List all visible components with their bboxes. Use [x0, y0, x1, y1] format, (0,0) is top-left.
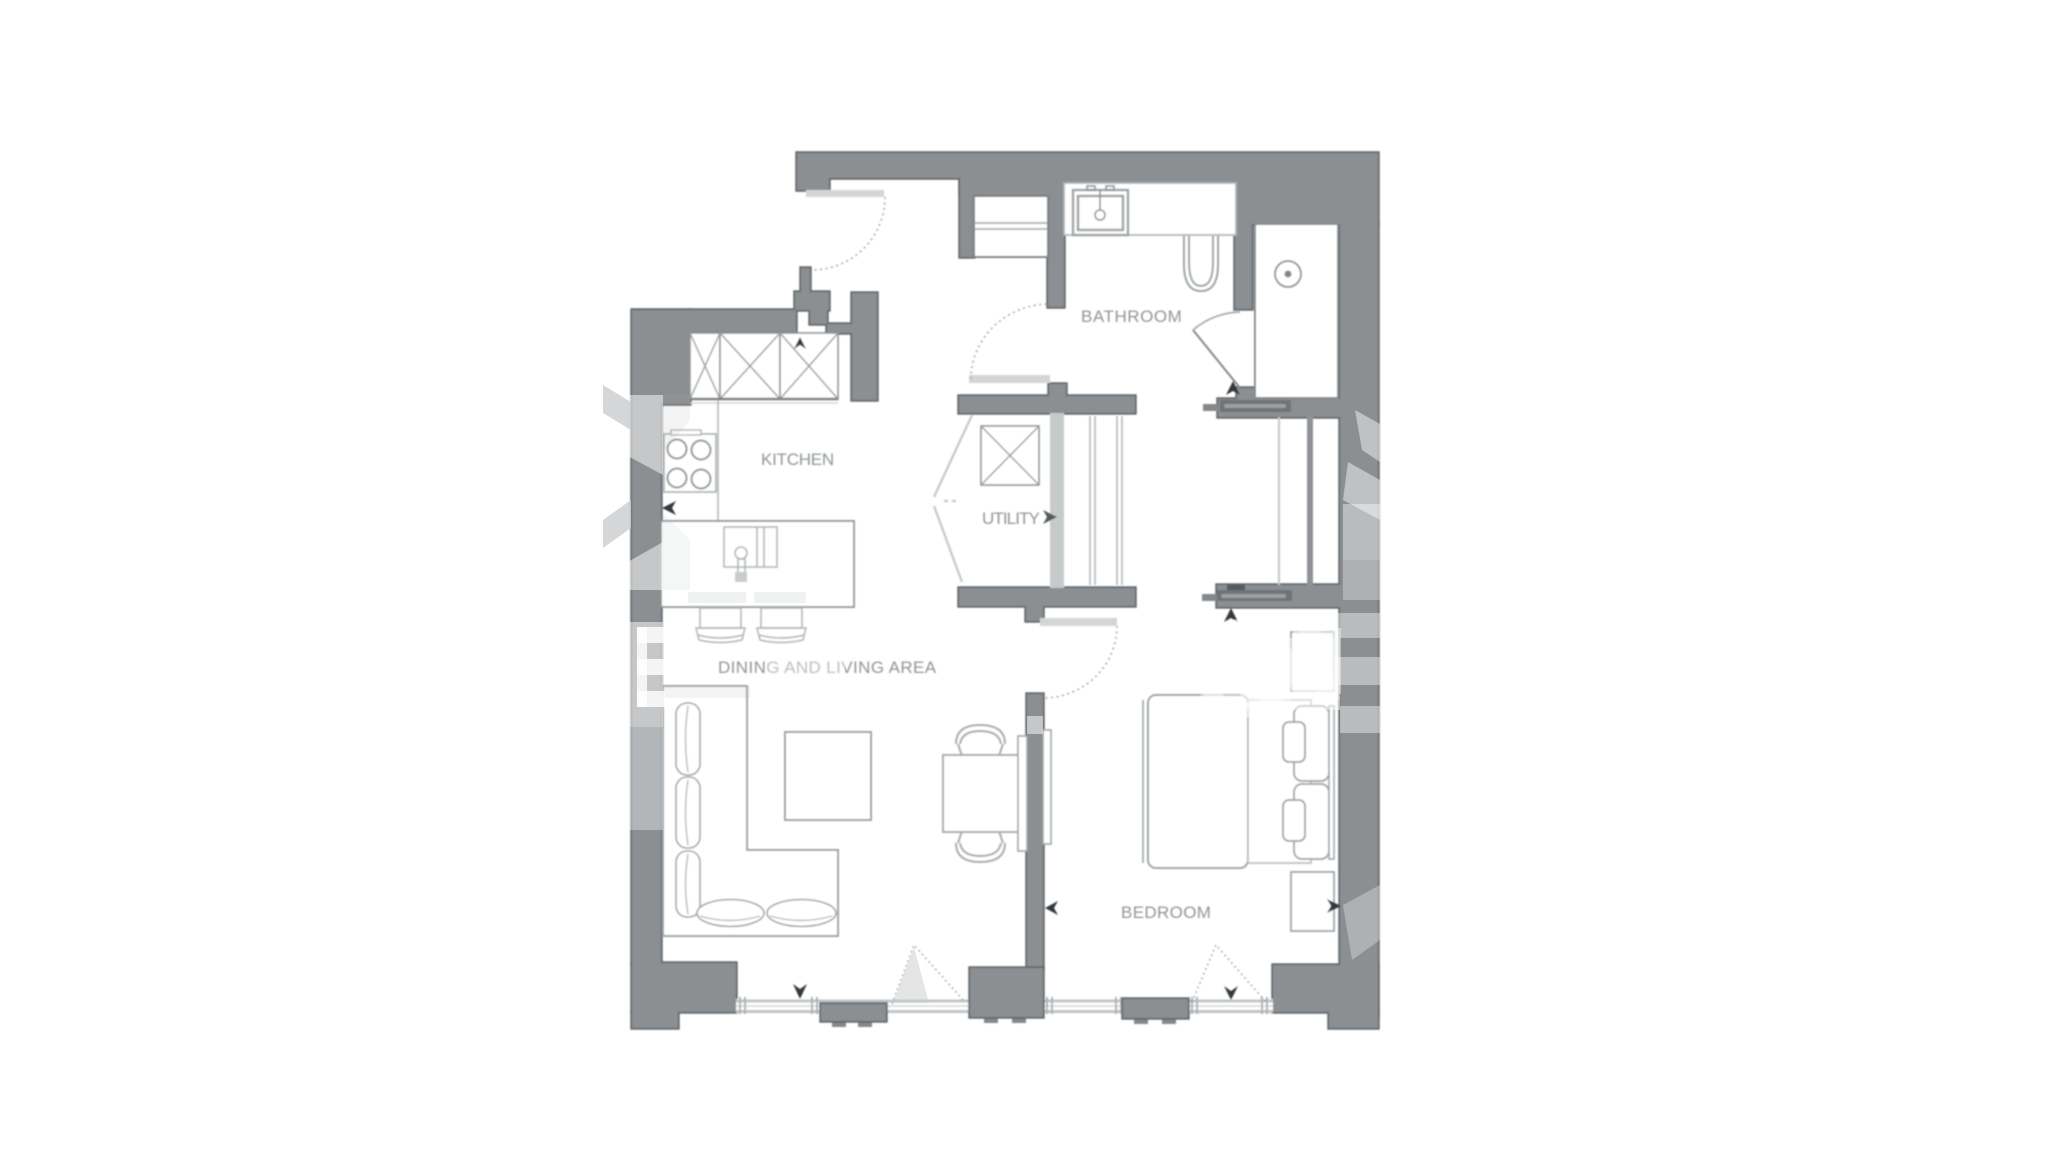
svg-text:BEDROOM: BEDROOM	[1121, 903, 1211, 922]
svg-text:KITCHEN: KITCHEN	[761, 450, 834, 469]
svg-text:BATHROOM: BATHROOM	[1081, 307, 1182, 326]
svg-text:UTILITY: UTILITY	[982, 509, 1040, 528]
